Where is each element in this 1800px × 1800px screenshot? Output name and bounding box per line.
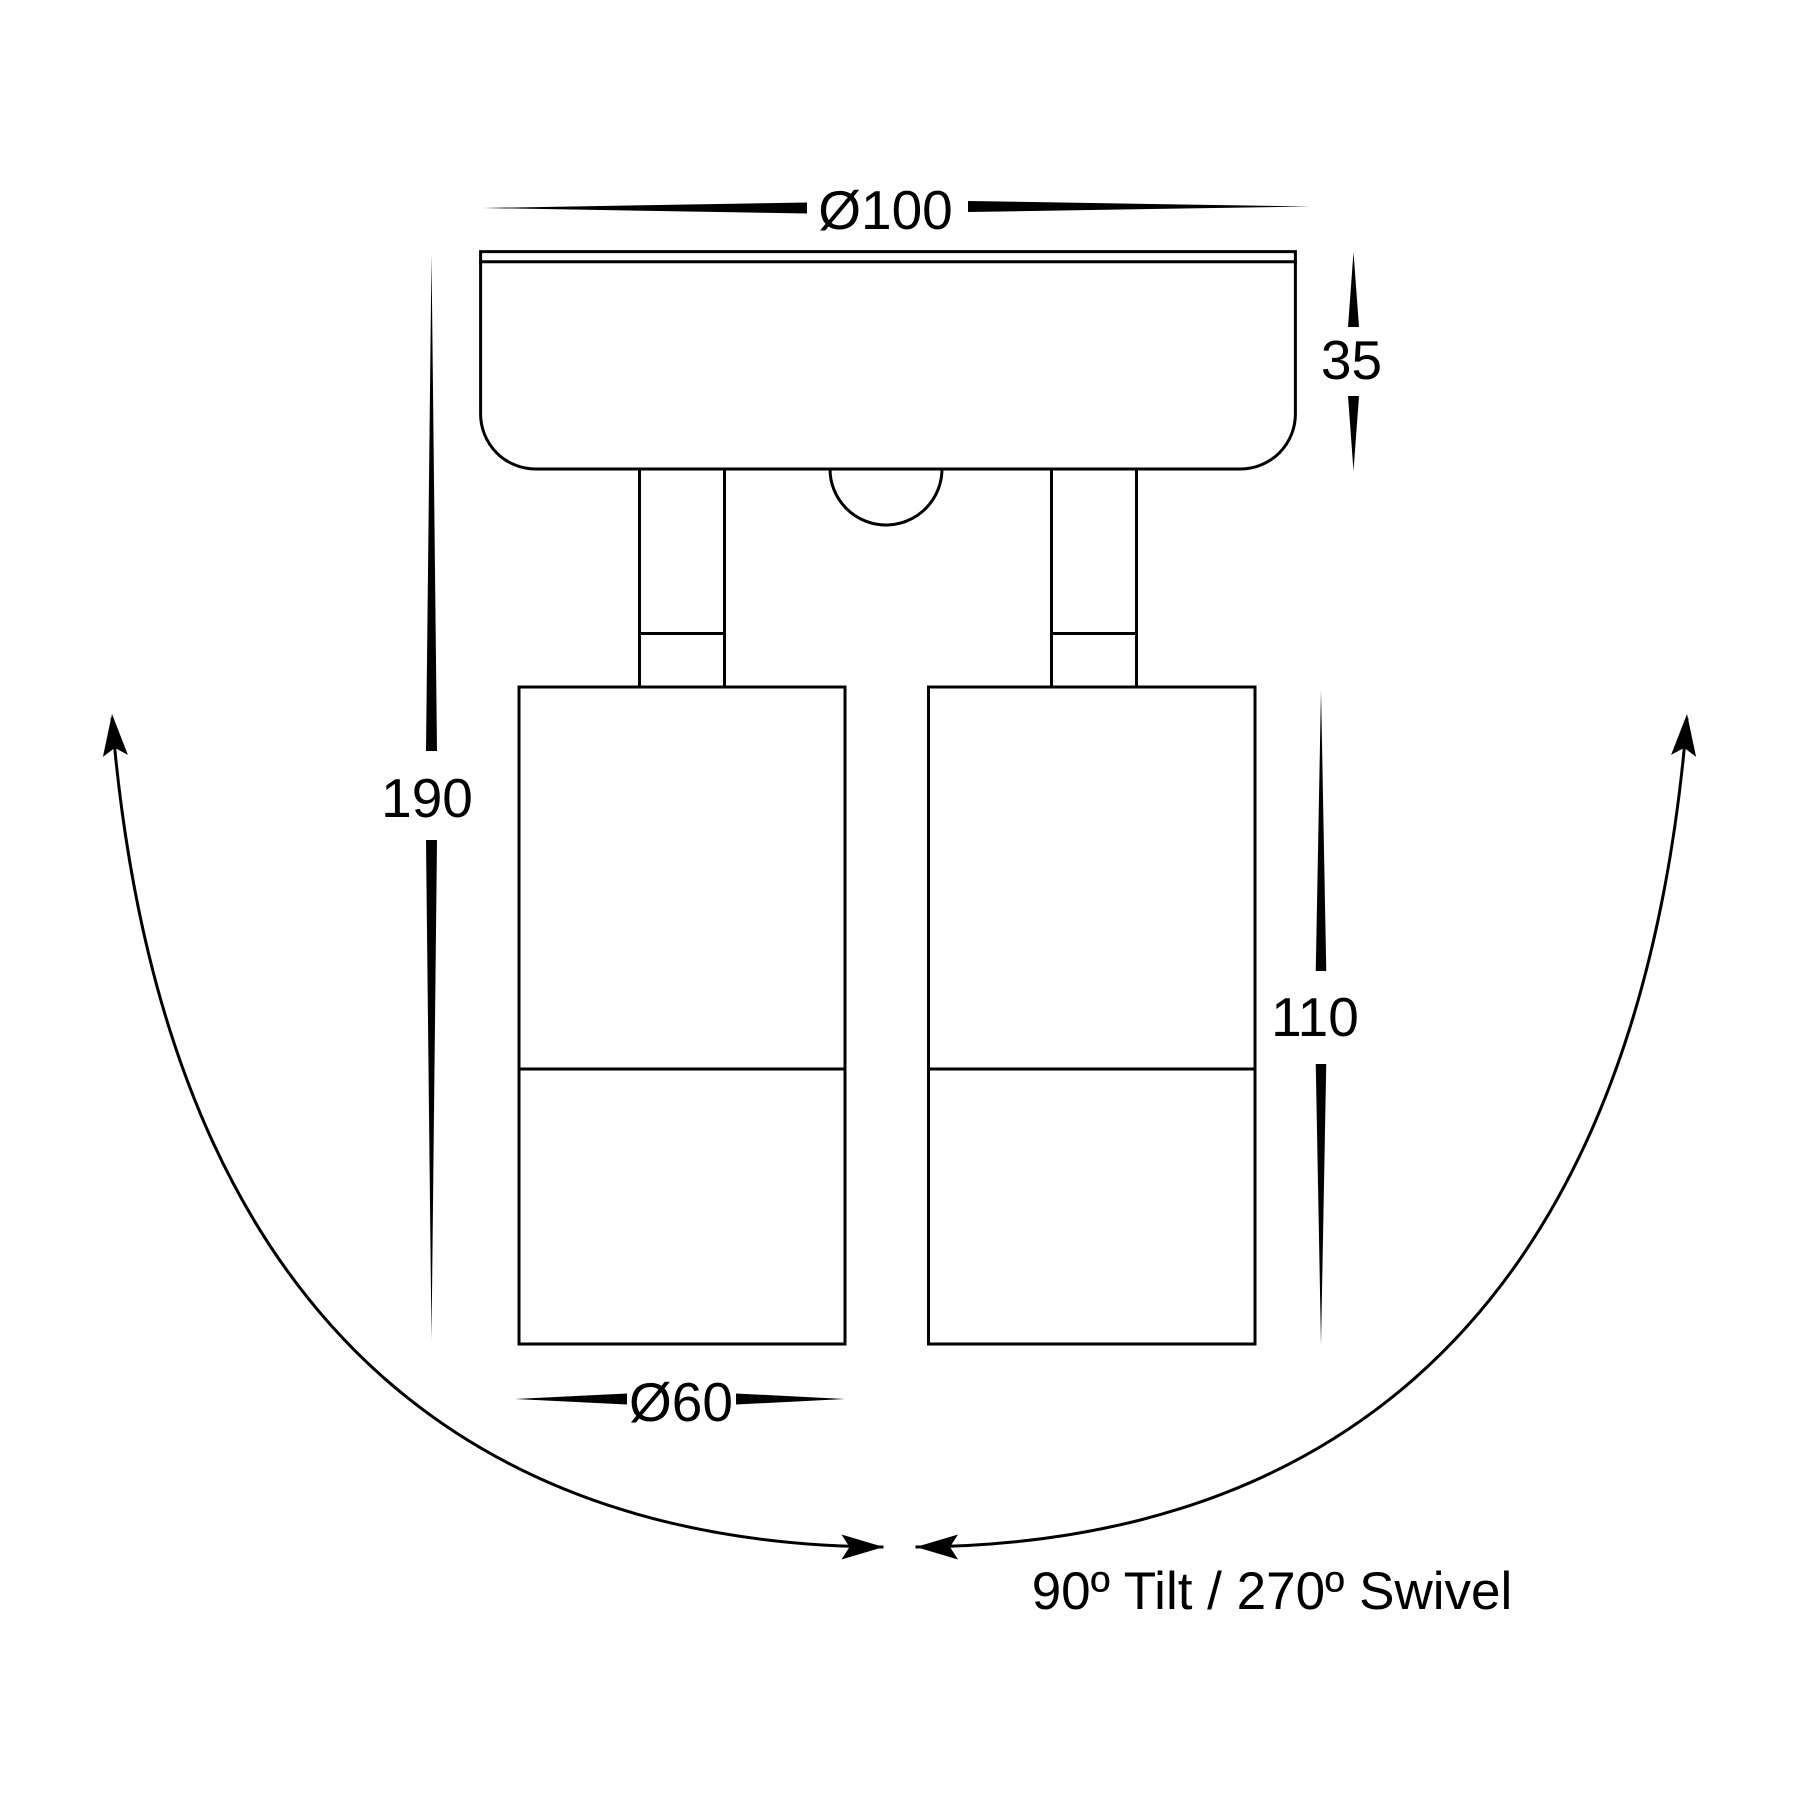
svg-text:Ø100: Ø100 bbox=[818, 179, 953, 241]
svg-text:Ø60: Ø60 bbox=[629, 1371, 733, 1433]
svg-text:90º Tilt / 270º Swivel: 90º Tilt / 270º Swivel bbox=[1032, 1562, 1513, 1621]
svg-text:190: 190 bbox=[381, 767, 473, 829]
svg-text:110: 110 bbox=[1271, 986, 1359, 1048]
svg-text:35: 35 bbox=[1321, 329, 1382, 391]
